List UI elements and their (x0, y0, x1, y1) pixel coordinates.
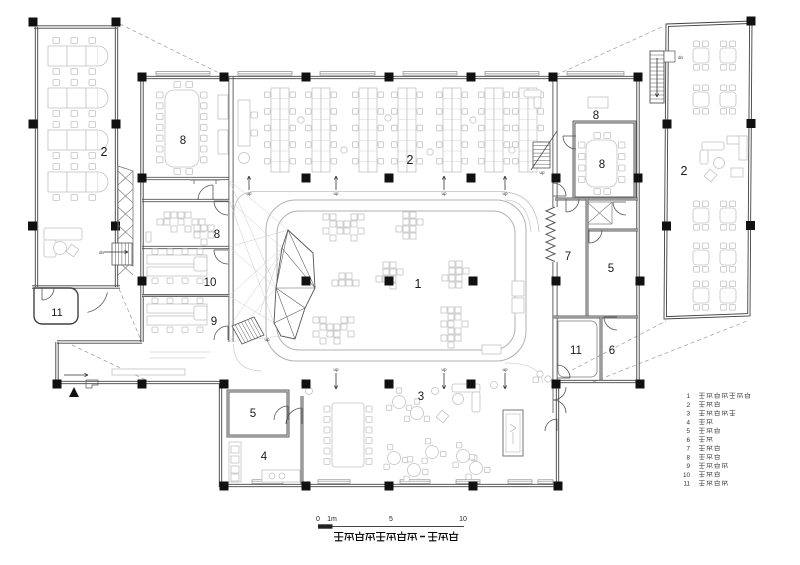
svg-text:dn: dn (678, 55, 684, 60)
svg-text:8: 8 (593, 110, 599, 122)
svg-text:10: 10 (683, 472, 691, 479)
svg-text:9: 9 (211, 316, 217, 328)
svg-text:2: 2 (407, 153, 414, 167)
svg-text:up: up (333, 367, 339, 372)
svg-text:3: 3 (686, 411, 690, 418)
svg-text:2: 2 (686, 402, 690, 409)
svg-text:6: 6 (686, 437, 690, 444)
svg-text:2: 2 (101, 145, 108, 159)
svg-text:3: 3 (418, 391, 424, 403)
svg-text:8: 8 (214, 229, 220, 241)
svg-text:1: 1 (415, 277, 422, 291)
svg-text:5: 5 (250, 408, 256, 420)
svg-text:4: 4 (686, 419, 690, 426)
svg-text:2: 2 (681, 164, 688, 178)
svg-text:5: 5 (389, 516, 393, 523)
svg-text:5: 5 (686, 428, 690, 435)
svg-text:11: 11 (570, 345, 582, 357)
svg-text:8: 8 (599, 159, 605, 171)
svg-text:5: 5 (608, 263, 614, 275)
svg-text:1: 1 (686, 393, 690, 400)
svg-text:11: 11 (683, 481, 690, 488)
svg-text:8: 8 (686, 454, 690, 461)
svg-text:1m: 1m (327, 516, 337, 523)
svg-text:up: up (264, 337, 270, 342)
svg-text:6: 6 (609, 345, 615, 357)
svg-text:7: 7 (686, 446, 690, 453)
svg-text:10: 10 (459, 516, 467, 523)
svg-text:7: 7 (565, 251, 571, 263)
svg-text:up: up (539, 170, 545, 175)
svg-text:up: up (441, 367, 447, 372)
svg-text:up: up (502, 367, 508, 372)
svg-text:11: 11 (51, 307, 62, 319)
svg-text:8: 8 (180, 135, 186, 147)
svg-text:10: 10 (204, 277, 217, 289)
svg-text:4: 4 (261, 451, 268, 463)
svg-text:9: 9 (686, 463, 690, 470)
svg-text:dn: dn (99, 250, 105, 255)
svg-text:0: 0 (316, 516, 320, 523)
